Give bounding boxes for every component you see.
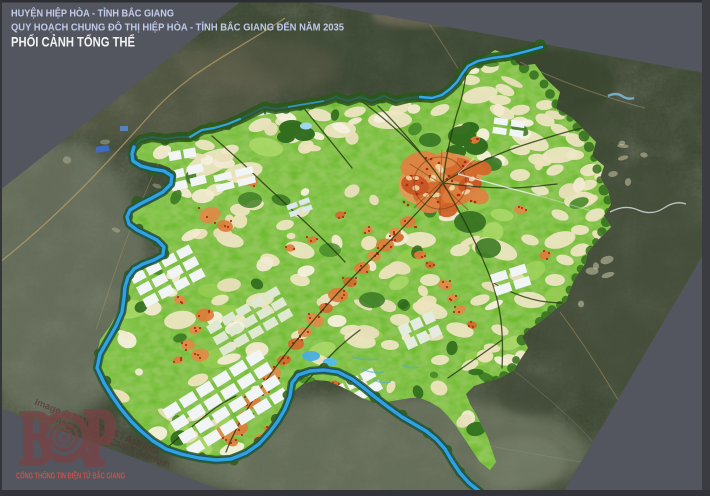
svg-text:CỔNG THÔNG TIN ĐIỆN TỬ BẮC GIA: CỔNG THÔNG TIN ĐIỆN TỬ BẮC GIANG [16,472,125,481]
svg-text:QUY HOẠCH CHUNG ĐÔ THỊ HIỆP HÒ: QUY HOẠCH CHUNG ĐÔ THỊ HIỆP HÒA - TỈNH B… [11,21,344,34]
svg-text:PHỐI CẢNH TỔNG THỂ: PHỐI CẢNH TỔNG THỂ [11,33,135,50]
svg-text:B: B [19,396,52,482]
svg-text:HUYỆN HIỆP HÒA - TỈNH BẮC GIAN: HUYỆN HIỆP HÒA - TỈNH BẮC GIANG [11,7,174,20]
